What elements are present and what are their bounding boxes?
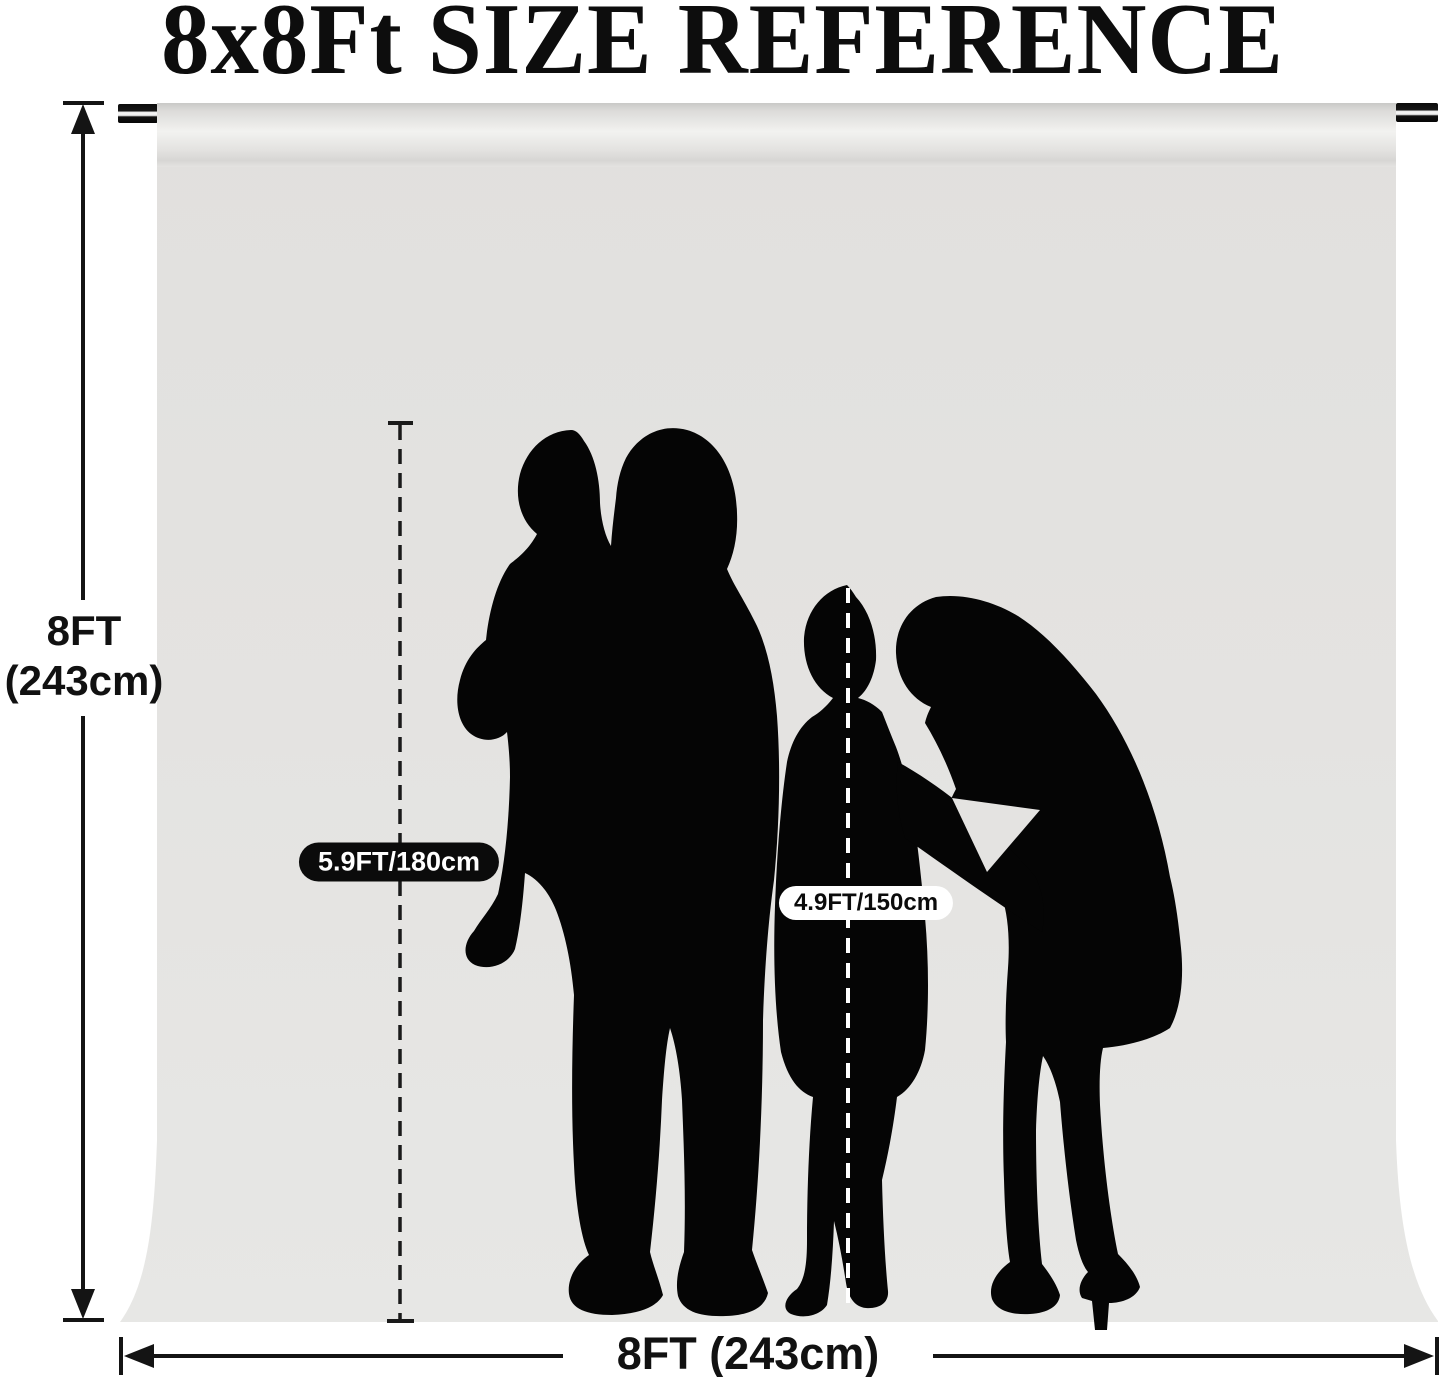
backdrop-top-roll	[157, 103, 1396, 167]
height-dimension-arrow	[63, 103, 104, 1320]
arrowhead-up-icon	[71, 104, 95, 134]
page-title: 8x8Ft SIZE REFERENCE	[36, 0, 1409, 92]
backdrop-width-label: 8FT (243cm)	[563, 1330, 933, 1377]
backdrop-fabric	[120, 103, 1438, 1322]
backdrop-height-label: 8FT (243cm)	[0, 606, 168, 706]
arrowhead-down-icon	[71, 1289, 95, 1319]
arrowhead-right-icon	[1404, 1344, 1434, 1368]
rod-right-end	[1396, 103, 1438, 122]
size-reference-diagram: 8x8Ft SIZE REFERENCE 8FT (243cm) 8FT (24…	[0, 0, 1445, 1377]
adult-height-badge: 5.9FT/180cm	[299, 843, 499, 882]
arrowhead-left-icon	[124, 1344, 154, 1368]
rod-left-end	[118, 104, 158, 123]
backdrop-height-feet: 8FT	[0, 606, 168, 656]
scene-graphic	[0, 0, 1445, 1377]
child-height-badge: 4.9FT/150cm	[779, 886, 953, 920]
backdrop-height-cm: (243cm)	[0, 656, 168, 706]
